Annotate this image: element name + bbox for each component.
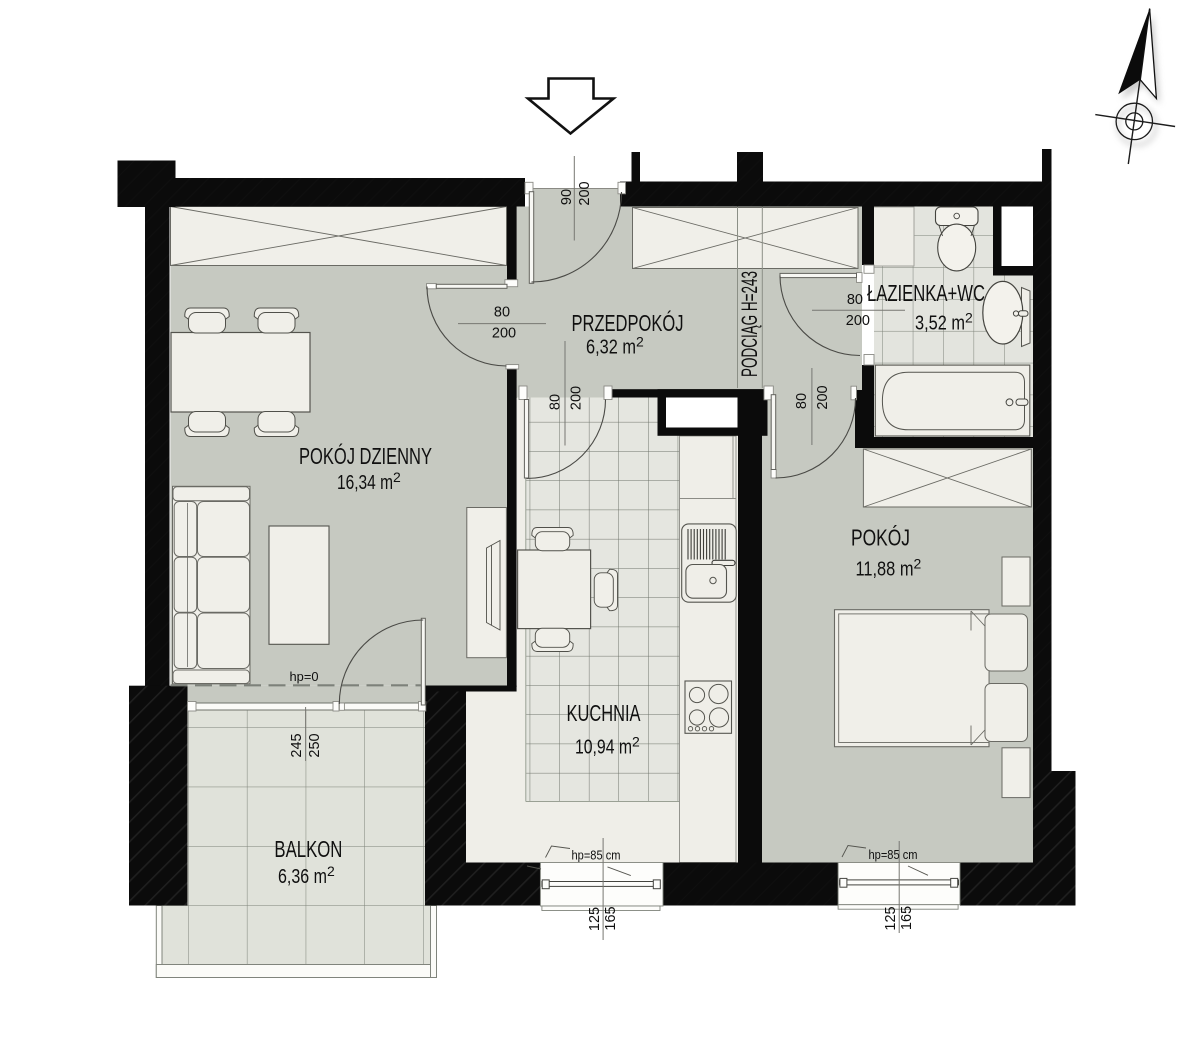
svg-text:KUCHNIA: KUCHNIA	[567, 700, 641, 726]
svg-text:200: 200	[492, 326, 516, 342]
svg-text:11,88 m2: 11,88 m2	[856, 556, 922, 581]
svg-text:ŁAZIENKA+WC: ŁAZIENKA+WC	[867, 280, 985, 306]
svg-text:3,52 m2: 3,52 m2	[915, 310, 973, 335]
svg-text:125: 125	[587, 907, 603, 931]
svg-text:80: 80	[847, 292, 863, 308]
svg-text:165: 165	[899, 906, 915, 930]
svg-text:PRZEDPOKÓJ: PRZEDPOKÓJ	[572, 310, 684, 336]
svg-text:165: 165	[603, 906, 619, 930]
svg-text:6,36 m2: 6,36 m2	[278, 863, 335, 888]
svg-text:16,34 m2: 16,34 m2	[337, 469, 401, 494]
svg-text:hp=0: hp=0	[290, 669, 319, 684]
svg-text:200: 200	[846, 313, 870, 329]
svg-text:10,94 m2: 10,94 m2	[575, 734, 640, 759]
svg-text:200: 200	[815, 385, 831, 409]
svg-text:125: 125	[883, 906, 899, 930]
svg-text:80: 80	[548, 394, 564, 410]
svg-text:90: 90	[559, 189, 575, 205]
svg-text:80: 80	[794, 393, 810, 409]
svg-text:hp=85 cm: hp=85 cm	[572, 848, 621, 863]
svg-text:200: 200	[577, 181, 593, 205]
svg-text:POKÓJ DZIENNY: POKÓJ DZIENNY	[299, 443, 432, 469]
svg-text:BALKON: BALKON	[274, 836, 342, 862]
svg-text:250: 250	[307, 733, 323, 757]
svg-text:hp=85 cm: hp=85 cm	[869, 847, 918, 862]
svg-text:80: 80	[494, 305, 510, 321]
svg-text:6,32 m2: 6,32 m2	[586, 334, 644, 359]
svg-text:200: 200	[569, 386, 585, 410]
svg-text:PODCIĄG H=243: PODCIĄG H=243	[737, 271, 762, 377]
svg-text:245: 245	[289, 733, 305, 757]
svg-text:POKÓJ: POKÓJ	[851, 525, 910, 551]
